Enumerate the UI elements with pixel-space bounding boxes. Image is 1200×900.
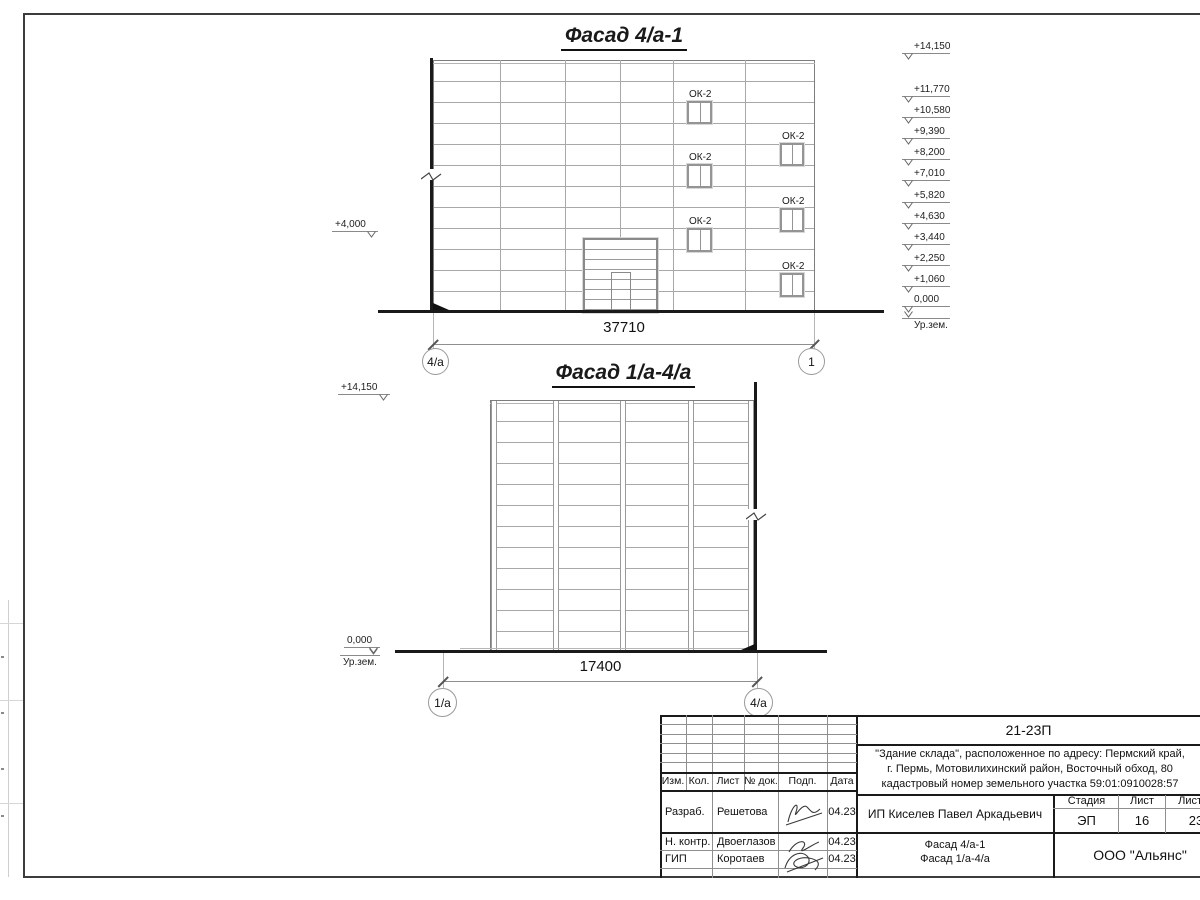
- elevation-mark: +8,200: [902, 147, 950, 160]
- titleblock-line: [660, 743, 857, 744]
- window-ok2: [780, 208, 804, 232]
- margin-line: [0, 803, 23, 804]
- window-mullion: [700, 166, 701, 186]
- titleblock-line: [660, 868, 857, 869]
- window-label: ОК-2: [782, 262, 805, 272]
- window-mullion: [700, 103, 701, 122]
- elevation-mark: +11,770: [902, 84, 950, 97]
- sheet-name-line: Фасад 4/а-1: [857, 838, 1053, 852]
- col-header-kol: Кол.: [686, 773, 712, 790]
- facade1-panel-joint: [673, 60, 674, 313]
- elevation-mark: 0,000: [344, 635, 380, 648]
- window-mullion: [792, 210, 793, 230]
- wicket-door: [611, 272, 631, 313]
- facade2-panel-strip: [688, 401, 694, 652]
- facade2-dimension: 17400: [443, 658, 758, 675]
- elevation-mark: +4,630: [902, 211, 950, 224]
- row-role: Разраб.: [661, 800, 712, 824]
- elevation-mark: 0,000: [902, 294, 950, 307]
- axis-label: 1: [808, 355, 815, 369]
- titleblock-line: [660, 762, 857, 763]
- sheet-name-line: Фасад 1/а-4/а: [857, 852, 1053, 866]
- signature: [780, 794, 826, 836]
- facade2-ground-line: [395, 650, 827, 653]
- row-name: Коротаев: [713, 851, 778, 868]
- sheets-label: Листов: [1166, 795, 1200, 808]
- window-label: ОК-2: [689, 90, 712, 100]
- col-header-izm: Изм.: [660, 773, 686, 790]
- project-line: кадастровый номер земельного участка 59:…: [860, 777, 1200, 792]
- stage-label: Стадия: [1055, 795, 1118, 808]
- elevation-mark: +14,150: [338, 382, 390, 395]
- dimension-line: [443, 681, 758, 682]
- margin-tick: [1, 656, 4, 658]
- project-description: "Здание склада", расположенное по адресу…: [860, 747, 1200, 792]
- frame-top: [23, 13, 1200, 15]
- ground-level-mark: Ур.зем.: [340, 655, 380, 668]
- ground-level-mark: Ур.зем.: [902, 318, 950, 331]
- margin-tick: [1, 712, 4, 714]
- facade2-panel-strip: [620, 401, 626, 652]
- elevation-mark: +1,060: [902, 274, 950, 287]
- window-mullion: [792, 145, 793, 164]
- window-label: ОК-2: [689, 153, 712, 163]
- break-symbol: [421, 169, 442, 180]
- elevation-mark: +10,580: [902, 105, 950, 118]
- window-ok2: [780, 273, 804, 297]
- titleblock-line: [660, 734, 857, 735]
- window-ok2: [780, 143, 804, 166]
- col-header-list: Лист: [712, 773, 744, 790]
- stage-value: ЭП: [1055, 809, 1118, 832]
- window-mullion: [792, 275, 793, 295]
- facade2-corner-foot: [741, 643, 757, 650]
- elevation-mark: +5,820: [902, 190, 950, 203]
- row-name: Решетова: [713, 800, 778, 824]
- axis-label: 1/а: [434, 696, 451, 710]
- facade1-title: Фасад 4/а-1: [433, 24, 815, 48]
- window-ok2: [687, 101, 712, 124]
- facade1-ground-line: [378, 310, 884, 313]
- window-ok2: [687, 164, 712, 188]
- window-label: ОК-2: [782, 197, 805, 207]
- facade2-panel-strip: [491, 401, 497, 652]
- row-name: Двоеглазов: [713, 834, 778, 850]
- window-label: ОК-2: [689, 217, 712, 227]
- break-symbol: [746, 509, 767, 520]
- row-date: 04.23: [827, 851, 857, 868]
- elevation-mark: +2,250: [902, 253, 950, 266]
- sheet-label: Лист: [1119, 795, 1165, 808]
- doc-number: 21-23П: [857, 717, 1200, 744]
- axis-bubble-4a: 4/а: [422, 348, 449, 375]
- axis-label: 4/а: [427, 355, 444, 369]
- col-header-data: Дата: [827, 773, 857, 790]
- facade1-corner-line: [430, 58, 433, 313]
- facade1-corner-foot: [433, 303, 449, 310]
- facade2-title: Фасад 1/а-4/а: [490, 361, 757, 385]
- titleblock-line: [660, 790, 857, 792]
- row-date: 04.23: [827, 800, 857, 824]
- frame-bottom: [23, 876, 1200, 878]
- axis-bubble-1: 1: [798, 348, 825, 375]
- facade1-panel-joint: [500, 60, 501, 313]
- elevation-mark: +4,000: [332, 219, 378, 232]
- margin-tick: [1, 815, 4, 817]
- project-line: "Здание склада", расположенное по адресу…: [860, 747, 1200, 762]
- client-name: ИП Киселев Павел Аркадьевич: [857, 796, 1053, 832]
- elevation-mark: +7,010: [902, 168, 950, 181]
- axis-label: 4/а: [750, 696, 767, 710]
- sheet-name: Фасад 4/а-1 Фасад 1/а-4/а: [857, 838, 1053, 866]
- margin-line: [0, 700, 23, 701]
- frame-left: [23, 13, 25, 878]
- facade2-panel-strip: [553, 401, 559, 652]
- window-label: ОК-2: [782, 132, 805, 142]
- titleblock-line: [857, 744, 1200, 746]
- row-role: ГИП: [661, 851, 712, 868]
- signature: [779, 834, 827, 881]
- facade1-panel-joint: [745, 60, 746, 313]
- titleblock-line: [660, 724, 857, 725]
- window-mullion: [700, 230, 701, 250]
- axis-bubble-1a: 1/а: [428, 688, 457, 717]
- elevation-mark: +9,390: [902, 126, 950, 139]
- elevation-mark: +14,150: [902, 41, 950, 54]
- row-role: Н. контр.: [661, 834, 712, 850]
- col-header-podp: Подп.: [778, 773, 827, 790]
- margin-line: [8, 600, 9, 877]
- col-header-doc: № док.: [744, 773, 778, 790]
- window-ok2: [687, 228, 712, 252]
- facade1-panel-joint: [565, 60, 566, 313]
- facade1-parapet-line: [433, 63, 815, 64]
- facade2-plinth-line: [460, 648, 756, 649]
- elevation-mark: +3,440: [902, 232, 950, 245]
- axis-bubble-4a: 4/а: [744, 688, 773, 717]
- margin-line: [0, 623, 23, 624]
- sheets-value: 23: [1166, 809, 1200, 832]
- row-date: 04.23: [827, 834, 857, 850]
- sheet-value: 16: [1119, 809, 1165, 832]
- project-line: г. Пермь, Мотовилихинский район, Восточн…: [860, 762, 1200, 777]
- dimension-line: [433, 344, 815, 345]
- titleblock-line: [660, 753, 857, 754]
- facade1-dimension: 37710: [433, 319, 815, 336]
- drawing-sheet: Фасад 4/а-1 ОК-2 ОК-2 ОК-2 ОК-2 ОК-2 ОК-…: [0, 0, 1200, 900]
- company-name: ООО "Альянс": [1055, 834, 1200, 876]
- margin-tick: [1, 768, 4, 770]
